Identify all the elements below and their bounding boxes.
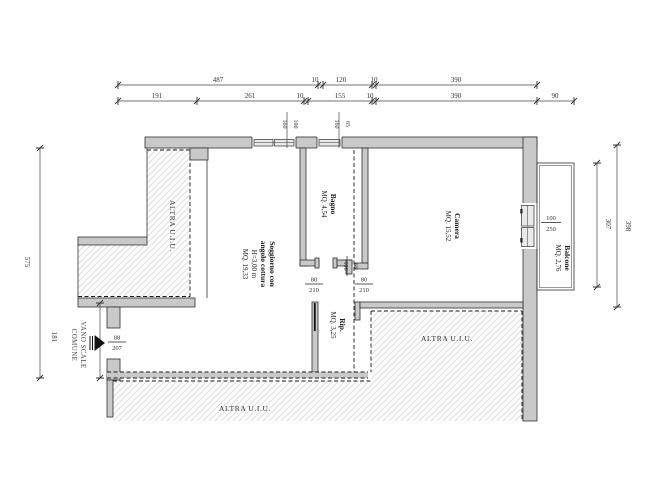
bagno-left-wall — [300, 148, 306, 266]
dim-label: 10 — [312, 76, 320, 84]
altra-uiu-label-right: ALTRA U.I.U. — [421, 334, 473, 343]
bagno-door-jamb-right — [333, 258, 337, 268]
dim-label: 10 — [371, 76, 379, 84]
dimension-row-1: 487 10 120 10 390 — [115, 76, 540, 89]
altra-uiu-label-bottom: ALTRA U.I.U. — [219, 404, 271, 413]
camera-left-wall — [362, 148, 368, 263]
camera-name: Camera — [453, 213, 462, 239]
dim-label: 120 — [336, 76, 347, 84]
dimension-right-307: 307 — [593, 160, 612, 290]
camera-door-width-label: 80 — [361, 277, 368, 284]
vano-scale-line1: VANO SCALE — [79, 321, 87, 368]
vano-scale-line2: COMUNE — [70, 329, 78, 362]
soggiorno-height-label: H=3,00 m — [250, 250, 258, 279]
window2-icon — [319, 140, 340, 147]
entry-door-height-label: 207 — [112, 345, 123, 352]
floor-plan-canvas: 487 10 120 10 390 191 261 10 155 10 390 … — [0, 0, 648, 492]
bagno-door-jamb-left — [315, 258, 319, 268]
right-wall — [523, 137, 537, 421]
dimension-row-2: 191 261 10 155 10 390 90 — [115, 92, 577, 105]
dim-label: 155 — [335, 92, 346, 100]
rip-area: MQ. 3,25 — [329, 311, 337, 339]
room-label-balcone: Balcone MQ. 2,76 — [554, 244, 572, 272]
room-label-vano-scale: VANO SCALE COMUNE — [70, 321, 87, 368]
bagno-name: Bagno — [329, 194, 338, 215]
rip-door-annotation: 80 210 — [305, 277, 323, 295]
room-label-rip: Rip. MQ. 3,25 — [329, 311, 347, 339]
floor-plan-svg: 487 10 120 10 390 191 261 10 155 10 390 … — [0, 0, 648, 492]
balcony-door-annotation: 100 250 — [541, 215, 561, 233]
bagno-area: MQ. 4,54 — [320, 190, 328, 218]
wall-step-top-left — [190, 148, 208, 160]
hatch-region-bottom — [113, 381, 371, 421]
window1-width-label: 100 — [292, 120, 298, 129]
room-label-camera: Camera MQ. 15,52 — [444, 211, 462, 242]
camera-door-annotation: 80 210 — [355, 277, 373, 295]
window2-height-label: 160 — [333, 120, 339, 129]
camera-area: MQ. 15,52 — [444, 211, 452, 242]
balcone-name: Balcone — [563, 245, 572, 271]
camera-door-jamb — [355, 302, 360, 320]
camera-bottom-wall — [360, 302, 523, 308]
entrance-door-icon — [90, 335, 105, 351]
dim-label-575: 575 — [23, 257, 31, 268]
dim-label: 487 — [213, 76, 224, 84]
balcony-door-icon — [520, 206, 534, 247]
rip-door-width-label: 80 — [311, 277, 318, 284]
camera-door-height-label: 210 — [359, 287, 369, 294]
room-label-soggiorno: Soggiorno con angolo cottura H=3,00 m MQ… — [241, 241, 277, 288]
dim-label: 191 — [152, 92, 163, 100]
balcony-door-width-label: 100 — [546, 215, 556, 222]
entry-door-annotation: 88 207 — [108, 335, 126, 353]
dim-label: 390 — [451, 92, 462, 100]
dimension-right-398: 398 — [613, 142, 632, 310]
dim-label-181: 181 — [50, 332, 58, 343]
soggiorno-name-line2: angolo cottura — [259, 241, 268, 288]
soggiorno-name-line1: Soggiorno con — [268, 241, 277, 287]
window2-width-label: 65 — [344, 121, 350, 127]
entry-upper-stub — [107, 307, 120, 328]
dim-label-398: 398 — [624, 221, 632, 232]
balcony-door-height-label: 250 — [546, 226, 556, 233]
hatch-fill-bottom — [113, 381, 371, 421]
dim-label: 390 — [451, 76, 462, 84]
hatch-region-right — [371, 311, 523, 421]
rip-door-height-label: 210 — [309, 287, 319, 294]
window1-height-label: 160 — [281, 120, 287, 129]
rip-name: Rip. — [338, 318, 347, 332]
entry-door-width-label: 88 — [114, 335, 121, 342]
extension-top-wall — [78, 237, 147, 245]
bagno-door-height-label: 196 — [342, 262, 348, 271]
top-left-bottom-wall — [78, 298, 195, 307]
dim-label-90: 90 — [552, 92, 560, 100]
dimension-left-575: 575 — [23, 145, 44, 381]
soggiorno-area-label: MQ. 19,33 — [241, 249, 249, 280]
bagno-door-width-label: 65 — [352, 263, 358, 269]
dim-label: 10 — [367, 92, 375, 100]
dim-label: 261 — [245, 92, 256, 100]
room-label-bagno: Bagno MQ. 4,54 — [320, 190, 338, 218]
balcone-area: MQ. 2,76 — [554, 244, 562, 272]
bottom-dashed-wall — [107, 372, 368, 378]
dim-label: 10 — [297, 92, 305, 100]
dim-label-307: 307 — [604, 219, 612, 230]
altra-uiu-label-top-left: ALTRA U.I.U. — [168, 200, 177, 252]
hatch-fill-right — [371, 311, 523, 421]
left-lower-wall — [107, 380, 113, 417]
